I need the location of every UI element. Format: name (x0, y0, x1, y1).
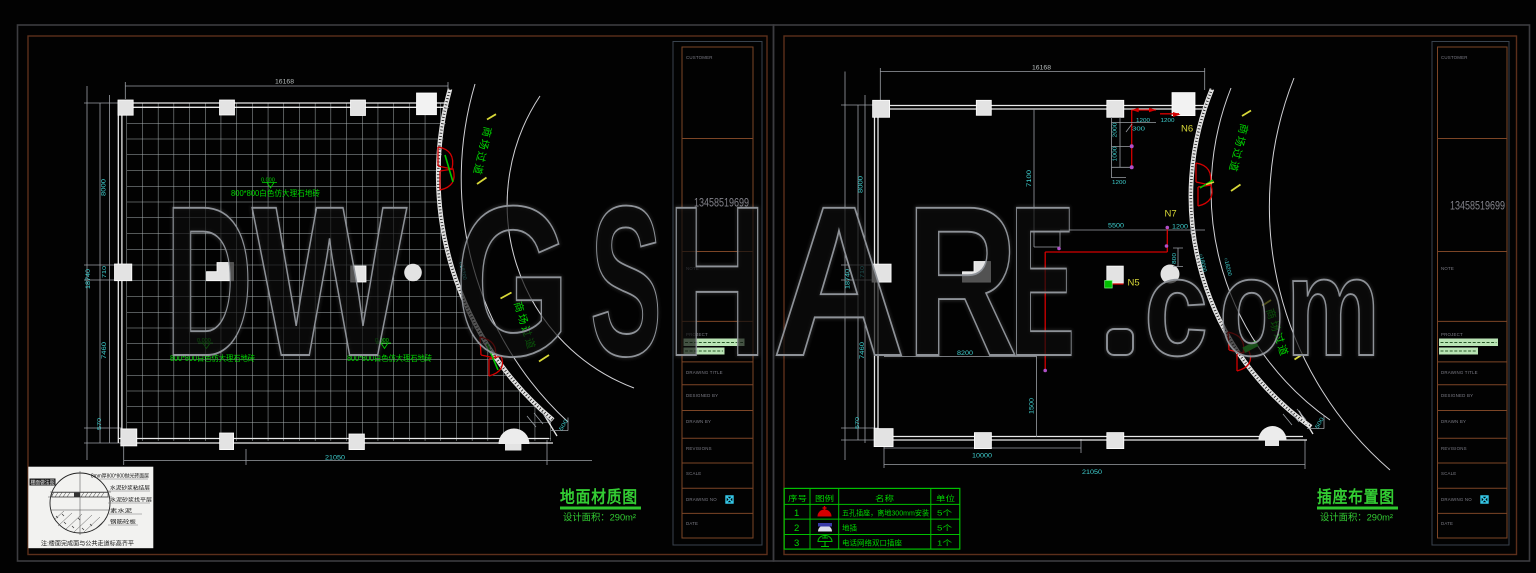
svg-text:21050: 21050 (325, 456, 346, 462)
svg-text:18740: 18740 (86, 268, 92, 289)
svg-text:名称: 名称 (875, 493, 895, 503)
svg-text:插座布置图: 插座布置图 (1317, 487, 1395, 507)
svg-text:E: E (1010, 162, 1075, 401)
svg-text:570: 570 (855, 417, 861, 429)
svg-text:地插: 地插 (842, 523, 857, 533)
svg-text:DRAWN BY: DRAWN BY (1441, 419, 1466, 424)
svg-text:设计面积：290m²: 设计面积：290m² (1320, 512, 1393, 524)
svg-text:8000: 8000 (102, 178, 108, 196)
svg-text:注:楼面完成面与公共走道标高齐平: 注:楼面完成面与公共走道标高齐平 (41, 540, 134, 548)
svg-text:水泥砂浆粘结层: 水泥砂浆粘结层 (110, 485, 150, 492)
svg-text:序号: 序号 (788, 493, 807, 503)
svg-text:1: 1 (794, 508, 799, 519)
svg-text:5500: 5500 (1108, 224, 1125, 230)
svg-text:G: G (455, 162, 570, 401)
svg-text:钢筋砼板: 钢筋砼板 (110, 519, 136, 526)
svg-text:16168: 16168 (1032, 66, 1052, 72)
svg-text:16168: 16168 (275, 80, 295, 86)
svg-text:PROJECT: PROJECT (1441, 332, 1463, 337)
svg-text:13458519699: 13458519699 (1450, 201, 1505, 213)
svg-text:7460: 7460 (102, 341, 108, 359)
svg-text:21050: 21050 (1082, 470, 1103, 476)
svg-text:REVISIONS: REVISIONS (1441, 446, 1467, 451)
svg-text:楼面做法图: 楼面做法图 (31, 479, 55, 487)
svg-text:DRAWING NO: DRAWING NO (1441, 497, 1472, 502)
svg-text:10000: 10000 (972, 454, 993, 460)
svg-text:300: 300 (1132, 127, 1145, 133)
svg-text:W: W (252, 162, 407, 401)
svg-text:3: 3 (794, 538, 799, 549)
svg-text:1000: 1000 (1113, 147, 1119, 162)
svg-text:2: 2 (794, 523, 799, 534)
svg-text:A: A (772, 162, 906, 401)
svg-text:图例: 图例 (815, 493, 834, 503)
svg-text:DATE: DATE (686, 521, 698, 526)
svg-text:570: 570 (97, 418, 103, 430)
svg-text:REVISIONS: REVISIONS (686, 446, 712, 451)
svg-text:N5: N5 (1128, 278, 1140, 289)
svg-text:1个: 1个 (937, 539, 953, 548)
svg-text:8mm厚800*800抛光砖面层: 8mm厚800*800抛光砖面层 (91, 473, 149, 480)
svg-text:DATE: DATE (1441, 521, 1453, 526)
svg-text:DRAWING TITLE: DRAWING TITLE (1441, 370, 1478, 375)
svg-text:S: S (590, 162, 662, 401)
svg-text:o: o (1219, 228, 1284, 385)
svg-text:m: m (1286, 228, 1380, 385)
svg-text:素水泥: 素水泥 (110, 508, 132, 515)
svg-text:DRAWING NO: DRAWING NO (686, 497, 717, 502)
svg-text:电话网络双口插座: 电话网络双口插座 (842, 538, 902, 548)
svg-text:R: R (906, 162, 1018, 401)
svg-text:单位: 单位 (936, 493, 956, 503)
svg-text:1200: 1200 (1112, 180, 1126, 186)
svg-text:5个: 5个 (937, 524, 953, 533)
svg-text:地面材质图: 地面材质图 (560, 487, 638, 507)
svg-text:DRAWN BY: DRAWN BY (686, 419, 711, 424)
svg-text:NOTE: NOTE (1441, 266, 1454, 271)
svg-text:SCALE: SCALE (686, 471, 701, 476)
svg-text:五孔插座，离地300mm安装: 五孔插座，离地300mm安装 (842, 508, 929, 518)
svg-text:710: 710 (102, 266, 108, 278)
svg-text:H: H (667, 162, 767, 401)
svg-text:1200: 1200 (1161, 118, 1175, 124)
svg-text:DESIGNED BY: DESIGNED BY (1441, 393, 1473, 398)
svg-text:5个: 5个 (937, 509, 953, 518)
svg-text:设计面积：290m²: 设计面积：290m² (563, 512, 636, 524)
svg-text:D: D (165, 162, 253, 401)
svg-text:CUSTOMER: CUSTOMER (686, 55, 713, 60)
svg-text:CUSTOMER: CUSTOMER (1441, 55, 1468, 60)
svg-text:N7: N7 (1165, 209, 1177, 220)
svg-text:SCALE: SCALE (1441, 471, 1456, 476)
svg-text:c: c (1144, 228, 1208, 385)
svg-text:2000: 2000 (1113, 123, 1119, 138)
svg-text:N6: N6 (1181, 124, 1193, 135)
svg-text:水泥砂浆找平层: 水泥砂浆找平层 (110, 497, 152, 504)
